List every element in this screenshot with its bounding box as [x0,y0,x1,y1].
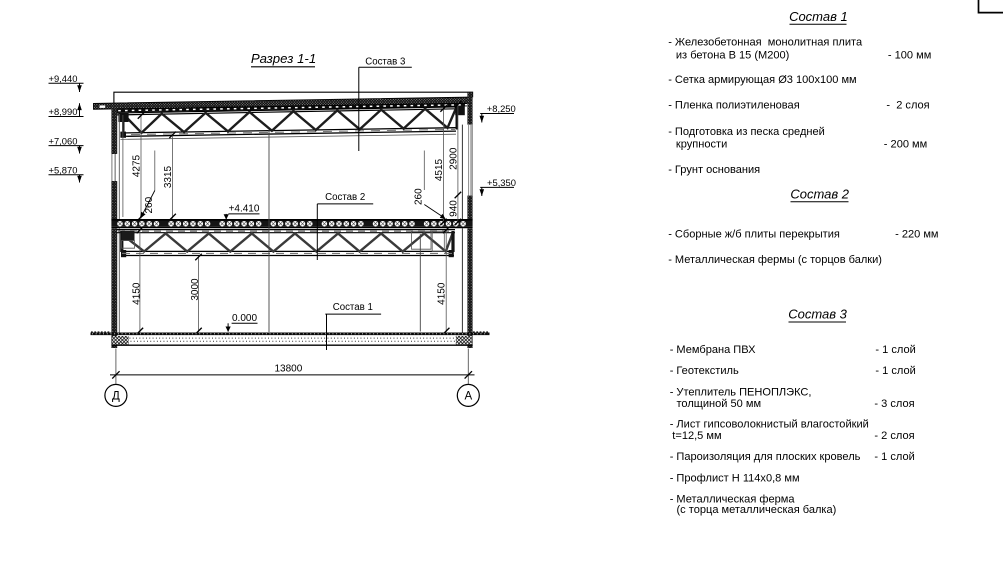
svg-text:Состав 2: Состав 2 [325,192,365,203]
svg-text:- 3 слоя: - 3 слоя [874,398,914,410]
svg-text:Состав 1: Состав 1 [333,302,373,313]
svg-text:- Пленка полиэтиленовая: - Пленка полиэтиленовая [668,100,800,112]
svg-text:t=12,5 мм: t=12,5 мм [672,430,721,442]
svg-text:Разрез 1-1: Разрез 1-1 [251,51,316,66]
svg-text:- Лист гипсоволокнистый влагос: - Лист гипсоволокнистый влагостойкий [670,419,869,431]
svg-text:+9,440: +9,440 [49,73,78,84]
svg-text:- Металлическая фермы (с торцо: - Металлическая фермы (с торцов балки) [668,254,882,266]
svg-text:- Сетка армирующая Ø3 100х100: - Сетка армирующая Ø3 100х100 мм [668,74,856,86]
svg-text:3000: 3000 [190,278,201,301]
svg-text:- Грунт основания: - Грунт основания [668,164,760,176]
svg-text:3315: 3315 [163,165,174,188]
svg-text:- Железобетонная монолитная п: - Железобетонная монолитная плита [668,37,863,49]
svg-text:- Утеплитель ПЕНОПЛЭКС,: - Утеплитель ПЕНОПЛЭКС, [670,386,812,398]
svg-text:- Сборные ж/б плиты перекрытия: - Сборные ж/б плиты перекрытия [668,228,840,240]
svg-text:- 1 слой: - 1 слой [874,451,914,463]
svg-text:+5,870: +5,870 [49,165,78,176]
svg-text:4275: 4275 [132,154,143,177]
svg-text:толщиной 50 мм: толщиной 50 мм [677,398,762,410]
svg-text:+8,990: +8,990 [49,106,78,117]
svg-text:+7,060: +7,060 [49,135,78,146]
svg-text:260: 260 [414,188,425,205]
svg-text:Состав 2: Состав 2 [790,186,849,201]
svg-text:- 1 слой: - 1 слой [875,365,915,377]
svg-text:260: 260 [144,196,155,213]
svg-text:4515: 4515 [434,158,445,181]
svg-text:+8,250: +8,250 [487,103,516,114]
svg-text:+4.410: +4.410 [229,203,260,214]
svg-text:- Подготовка из песка средней: - Подготовка из песка средней [668,126,825,138]
svg-text:А: А [464,391,472,403]
svg-text:Д: Д [112,391,120,403]
svg-text:- Мембрана ПВХ: - Мембрана ПВХ [670,344,756,356]
svg-text:2900: 2900 [448,147,459,170]
svg-text:крупности: крупности [676,139,727,151]
svg-text:- 200 мм: - 200 мм [884,139,927,151]
svg-text:- 100 мм: - 100 мм [888,49,931,61]
svg-text:13800: 13800 [274,363,302,374]
svg-text:4150: 4150 [132,282,143,305]
svg-text:0.000: 0.000 [232,313,257,324]
svg-text:- 1 слой: - 1 слой [875,344,915,356]
svg-text:+5,350: +5,350 [487,177,516,188]
svg-text:из бетона В 15 (М200): из бетона В 15 (М200) [676,49,789,61]
svg-text:- Пароизоляция для плоских кро: - Пароизоляция для плоских кровель [670,451,861,463]
svg-text:- Профлист Н 114х0,8 мм: - Профлист Н 114х0,8 мм [670,472,800,484]
svg-text:Состав 3: Состав 3 [788,306,847,321]
svg-text:Состав 1: Состав 1 [789,9,848,24]
svg-text:- 2 слоя: - 2 слоя [886,100,929,112]
svg-text:- Геотекстиль: - Геотекстиль [670,365,739,377]
svg-text:(с торца металлическая балка): (с торца металлическая балка) [677,504,837,516]
svg-text:Состав 3: Состав 3 [365,56,405,67]
svg-text:940: 940 [448,200,459,217]
svg-text:- 2 слоя: - 2 слоя [874,430,914,442]
svg-text:4150: 4150 [437,282,448,305]
svg-text:- 220 мм: - 220 мм [895,228,938,240]
